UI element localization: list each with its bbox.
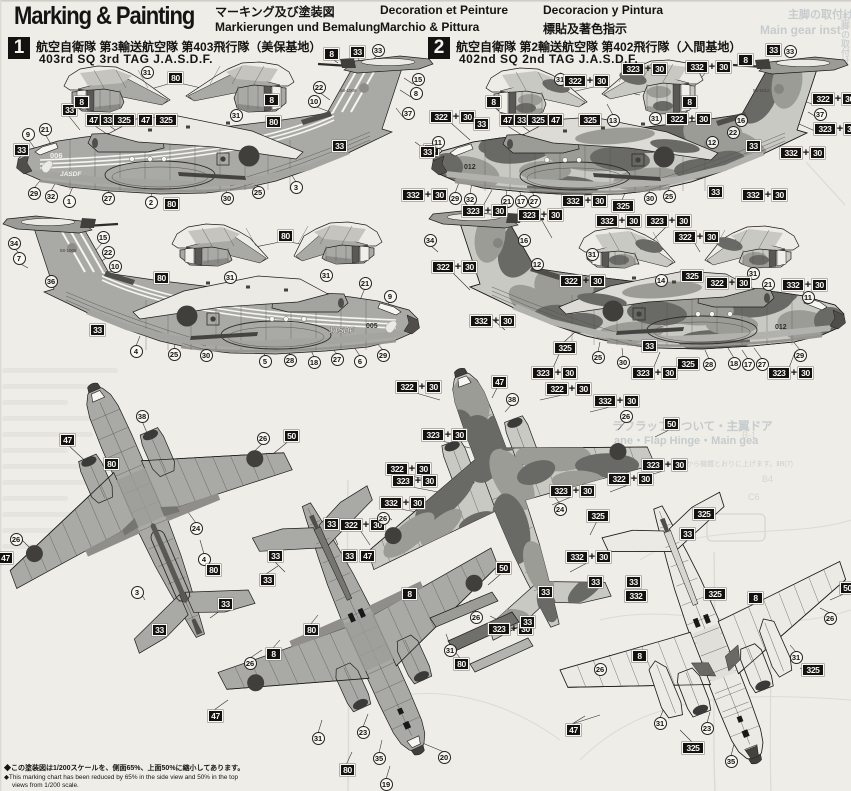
svg-text:012: 012 [775,324,787,331]
svg-text:58-1006: 58-1006 [340,88,357,93]
svg-text:B4: B4 [762,474,773,484]
svg-text:C6: C6 [748,492,760,502]
svg-text:005: 005 [366,323,378,330]
svg-text:JASDF: JASDF [60,171,82,178]
svg-text:012: 012 [464,164,476,171]
svg-text:006: 006 [50,151,63,160]
svg-text:Main gear inst: Main gear inst [760,23,841,37]
svg-text:B-1: B-1 [742,430,756,440]
svg-text:58-1006: 58-1006 [60,248,77,253]
svg-text:主脚の取付け: 主脚の取付け [788,7,851,21]
svg-text:ane・Flap Hinge・Main gea: ane・Flap Hinge・Main gea [614,435,759,447]
svg-text:58-1012: 58-1012 [753,88,770,93]
svg-text:JASDF: JASDF [328,326,355,335]
